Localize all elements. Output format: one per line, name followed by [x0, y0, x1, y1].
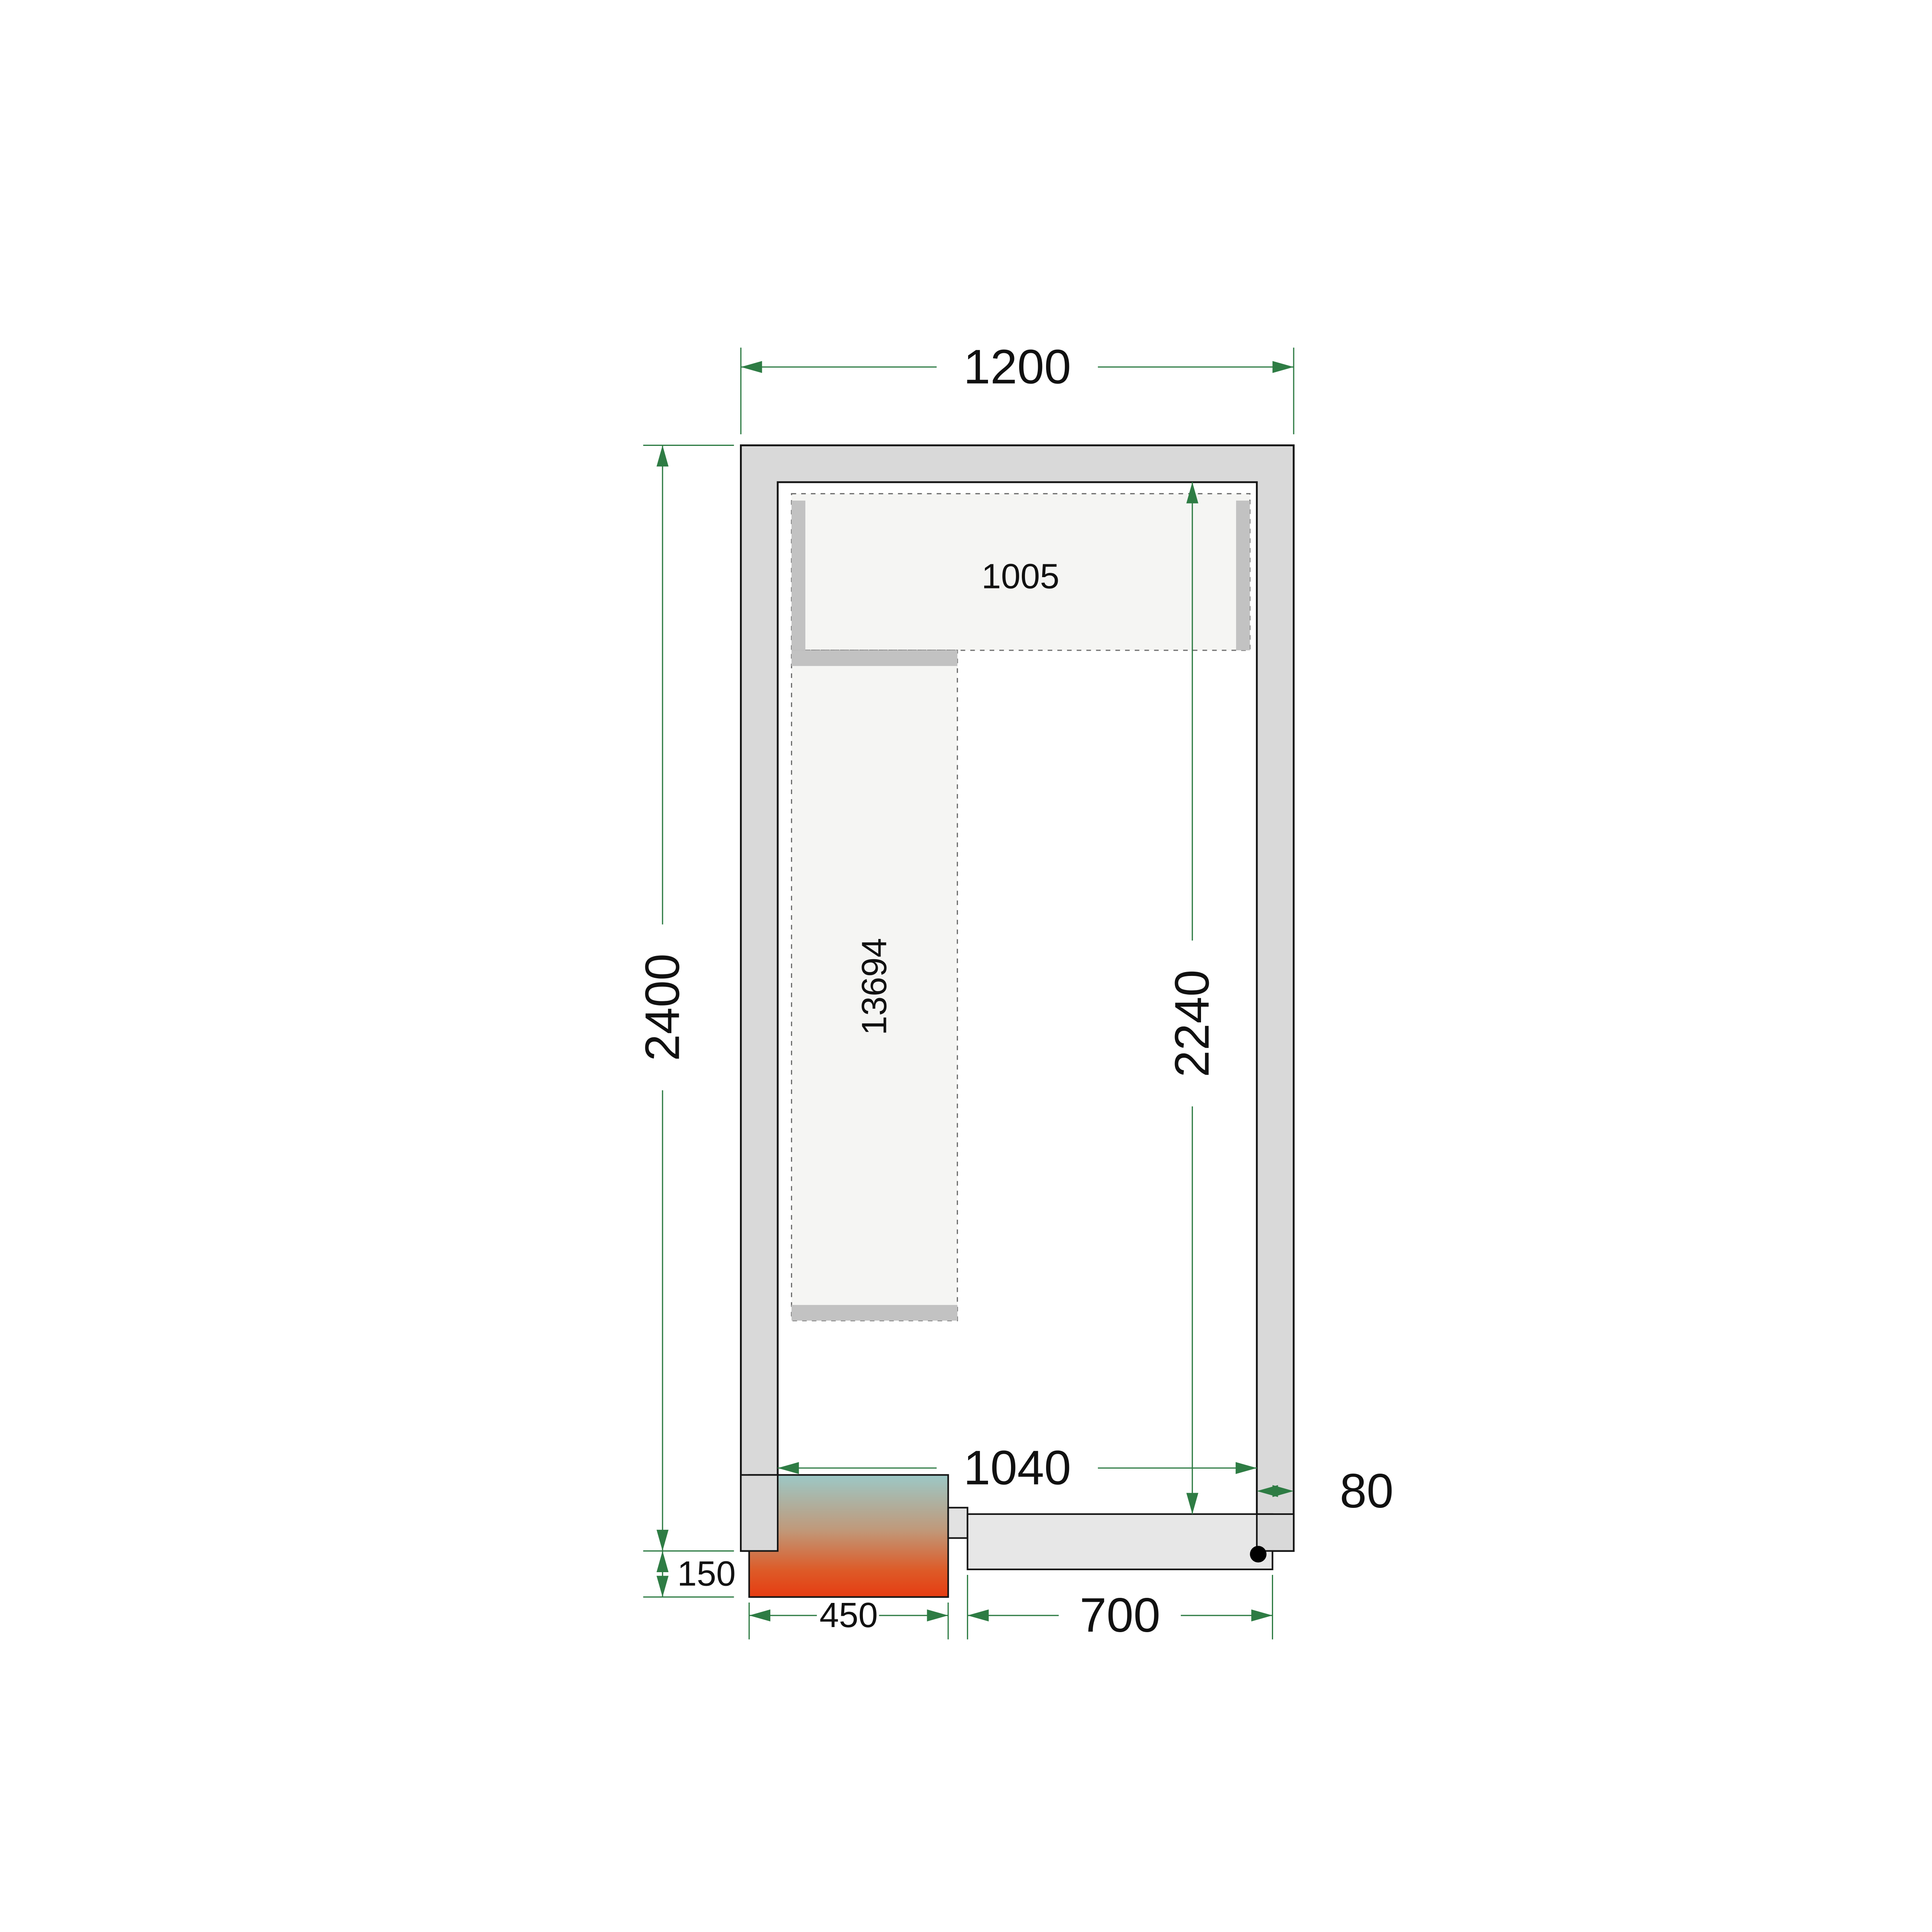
left-shelf-top-bracket	[792, 650, 958, 666]
arrow-left-icon	[967, 1610, 988, 1622]
door-leaf	[967, 1514, 1272, 1569]
arrow-down-icon	[1186, 1493, 1198, 1514]
arrow-left-icon	[749, 1610, 770, 1622]
arrow-right-icon	[1236, 1462, 1257, 1474]
door-group	[948, 1508, 1294, 1569]
arrow-down-icon	[657, 1576, 669, 1597]
dim-label-inner-height: 2240	[1166, 970, 1219, 1077]
arrow-left-icon	[778, 1462, 799, 1474]
dim-label-wall-thickness: 80	[1340, 1464, 1393, 1518]
door-hinge-dot	[1250, 1546, 1267, 1563]
left-shelf-bottom-bracket	[792, 1305, 958, 1321]
arrow-right-icon	[1273, 361, 1294, 373]
top-shelf-right-bracket	[1236, 500, 1250, 650]
dim-label-outer-width: 1200	[963, 340, 1071, 394]
arrow-up-icon	[657, 445, 669, 466]
dim-label-inner-width: 1040	[963, 1441, 1071, 1495]
cooler-unit	[749, 1475, 948, 1597]
dim-label-outer-height: 2400	[636, 954, 689, 1061]
label-top-shelf: 1005	[981, 557, 1059, 596]
wall-over-cooler	[741, 1475, 778, 1551]
floor-plan: 1200 2400 150 2240 1040 80 450 700 1005 …	[589, 293, 1400, 1703]
arrow-up-icon	[657, 1551, 669, 1572]
top-shelf-left-bracket	[792, 500, 805, 650]
cooler-group	[741, 1475, 948, 1597]
arrow-right-icon	[927, 1610, 948, 1622]
dim-label-cooler-width: 450	[819, 1596, 878, 1635]
wall-over-door	[1257, 1514, 1294, 1551]
dim-label-door-width: 700	[1080, 1589, 1160, 1642]
door-frame-step	[948, 1508, 968, 1538]
floor-plan-canvas: 1200 2400 150 2240 1040 80 450 700 1005 …	[589, 293, 1400, 1703]
arrow-up-icon	[1186, 482, 1198, 503]
shelves-group	[792, 494, 1250, 1321]
arrow-right-icon	[1251, 1610, 1272, 1622]
arrow-down-icon	[657, 1530, 669, 1551]
label-left-shelf: 13694	[855, 938, 894, 1035]
dim-label-cooler-protrusion: 150	[677, 1555, 736, 1594]
arrow-left-icon	[741, 361, 762, 373]
